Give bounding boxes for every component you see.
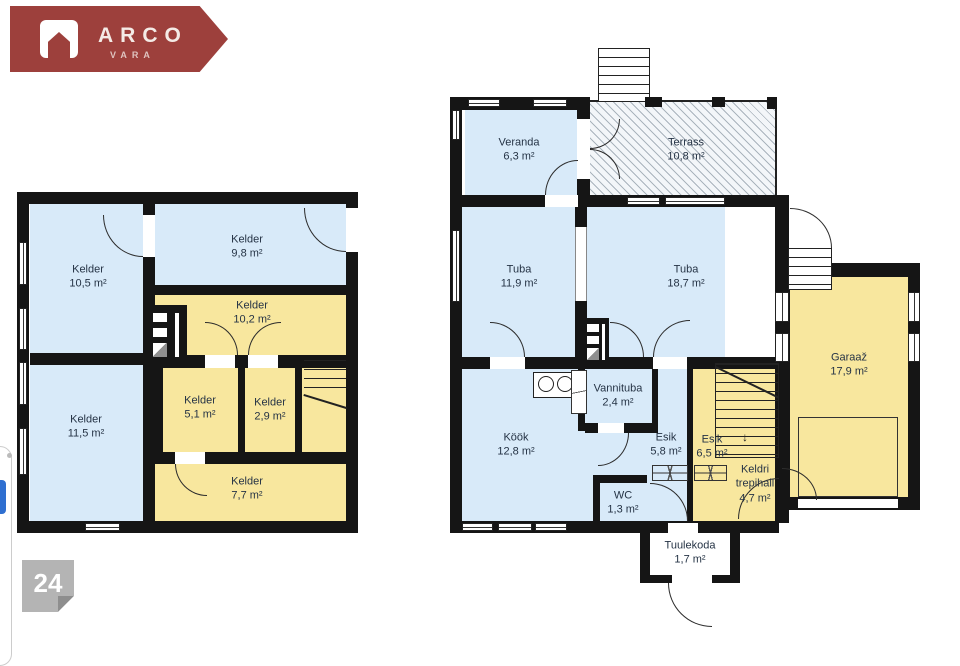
window xyxy=(498,523,532,531)
room-area: 2,9 m² xyxy=(254,410,286,424)
room-name: WC xyxy=(607,489,638,503)
terrace-post xyxy=(645,97,662,107)
window xyxy=(665,197,725,205)
terrace-post xyxy=(712,97,725,107)
room-name: Tuba xyxy=(667,263,704,277)
image-number-badge[interactable]: 24 xyxy=(22,560,74,612)
window xyxy=(775,292,789,322)
stove-burner xyxy=(538,376,554,392)
arco-vara-logo: ARCO VARA xyxy=(10,6,228,72)
room-label: Kelder7,7 m² xyxy=(231,475,263,504)
room-label: Tuba18,7 m² xyxy=(667,263,704,292)
basement-floor-plan: Kelder10,5 m² Kelder9,8 m² Kelder10,2 m²… xyxy=(17,192,358,533)
logo-brand-text: ARCO xyxy=(98,24,188,48)
room-name: Keldri trepihall xyxy=(727,463,783,492)
wall xyxy=(593,475,600,521)
door-gap xyxy=(143,215,155,257)
wall xyxy=(730,521,740,583)
door-gap xyxy=(668,523,698,533)
window xyxy=(452,230,460,302)
room-area: 11,9 m² xyxy=(501,277,537,291)
door-arc xyxy=(668,583,712,627)
stairs xyxy=(304,360,346,394)
room-area: 6,5 m² xyxy=(696,447,727,461)
wall xyxy=(450,195,789,207)
window xyxy=(19,362,27,405)
exterior-stairs xyxy=(598,48,650,102)
room-label: Tuba11,9 m² xyxy=(501,263,537,292)
stairs-down-arrow: ↓ xyxy=(742,430,748,444)
door-gap xyxy=(653,357,687,369)
room-name: Garaaž xyxy=(830,351,867,365)
chimney-block xyxy=(145,305,187,367)
room-name: Terrass xyxy=(667,136,704,150)
room-name: Esik xyxy=(650,431,681,445)
room-name: Kelder xyxy=(184,394,216,408)
door-arc xyxy=(790,208,832,248)
room-label: Kelder9,8 m² xyxy=(231,233,263,262)
room-area: 17,9 m² xyxy=(830,365,867,379)
window xyxy=(19,308,27,350)
window xyxy=(908,292,920,322)
room-area: 11,5 m² xyxy=(68,427,104,441)
window xyxy=(85,523,120,531)
room-area: 10,2 m² xyxy=(233,313,270,327)
wardrobe xyxy=(652,465,688,481)
logo-sub-text: VARA xyxy=(110,50,155,60)
room-label: Tuulekoda1,7 m² xyxy=(665,539,716,568)
boiler-cabinet xyxy=(571,370,587,414)
room-label: Kelder5,1 m² xyxy=(184,394,216,423)
wall-opening xyxy=(575,227,587,301)
door-gap xyxy=(545,195,578,207)
window xyxy=(908,333,920,362)
door-gap xyxy=(598,423,624,433)
chimney-block xyxy=(583,318,609,364)
window xyxy=(533,99,567,107)
room-label: Kelder11,5 m² xyxy=(68,413,104,442)
room-area: 10,5 m² xyxy=(69,277,106,291)
partial-blue-button[interactable] xyxy=(0,480,6,514)
window xyxy=(468,99,500,107)
badge-fold-corner xyxy=(58,596,74,612)
window xyxy=(627,197,660,205)
garage-door-gap xyxy=(798,499,898,508)
room-area: 18,7 m² xyxy=(667,277,704,291)
room-name: Kelder xyxy=(233,299,270,313)
entrance-steps xyxy=(788,248,832,290)
door-gap xyxy=(672,575,712,583)
room-label: Garaaž17,9 m² xyxy=(830,351,867,380)
room-label: Vannituba2,4 m² xyxy=(594,382,643,411)
room-area: 1,7 m² xyxy=(665,553,716,567)
door-gap xyxy=(248,355,278,368)
wall xyxy=(640,521,650,583)
wall xyxy=(593,475,647,483)
door-gap xyxy=(205,355,235,368)
card-dot xyxy=(7,453,12,458)
room-name: Vannituba xyxy=(594,382,643,396)
room-name: Kelder xyxy=(231,475,263,489)
room-label: Kelder10,2 m² xyxy=(233,299,270,328)
room-area: 5,8 m² xyxy=(650,445,681,459)
wall xyxy=(155,368,163,452)
partial-side-card xyxy=(0,446,12,666)
wall xyxy=(238,368,245,452)
badge-number: 24 xyxy=(22,568,74,599)
wall xyxy=(687,369,693,521)
room-label: Terrass10,8 m² xyxy=(667,136,704,165)
terrace-post xyxy=(767,97,777,109)
room-label: Kelder10,5 m² xyxy=(69,263,106,292)
room-label: Esik5,8 m² xyxy=(650,431,681,460)
room-name: Veranda xyxy=(499,136,540,150)
room-area: 9,8 m² xyxy=(231,247,263,261)
room-name: Kelder xyxy=(68,413,104,427)
room-area: 5,1 m² xyxy=(184,408,216,422)
room-name: Tuulekoda xyxy=(665,539,716,553)
room-name: Kelder xyxy=(231,233,263,247)
window xyxy=(19,428,27,475)
window xyxy=(462,523,493,531)
room-label: Kelder2,9 m² xyxy=(254,396,286,425)
door-gap xyxy=(175,452,205,464)
room-area: 2,4 m² xyxy=(594,396,643,410)
room-label: WC1,3 m² xyxy=(607,489,638,518)
wardrobe xyxy=(694,465,727,481)
window xyxy=(19,242,27,285)
window xyxy=(775,333,789,362)
room-area: 6,3 m² xyxy=(499,150,540,164)
room-area: 10,8 m² xyxy=(667,150,704,164)
wall xyxy=(652,369,658,433)
door-gap xyxy=(346,208,358,252)
room-name: Kelder xyxy=(69,263,106,277)
room-area: 1,3 m² xyxy=(607,503,638,517)
room-name: Esik xyxy=(696,433,727,447)
room-label: Keldri trepihall4,7 m² xyxy=(727,463,783,506)
room-area: 12,8 m² xyxy=(497,445,534,459)
wall xyxy=(30,353,143,365)
ground-floor-plan: ↓ Veranda6,3 m² Terrass10,8 m² Tuba11,9 … xyxy=(450,48,925,638)
door-gap xyxy=(577,119,590,179)
room-label: Esik6,5 m² xyxy=(696,433,727,462)
room-name: Kelder xyxy=(254,396,286,410)
door-gap xyxy=(490,357,525,369)
room-name: Tuba xyxy=(501,263,537,277)
room-name: Köök xyxy=(497,431,534,445)
room-label: Veranda6,3 m² xyxy=(499,136,540,165)
wall xyxy=(155,285,346,295)
room-area: 4,7 m² xyxy=(727,491,783,505)
room-area: 7,7 m² xyxy=(231,489,263,503)
house-icon xyxy=(40,20,78,58)
wall xyxy=(295,368,302,452)
room-label: Köök12,8 m² xyxy=(497,431,534,460)
window xyxy=(452,110,460,140)
wall xyxy=(827,263,910,277)
window xyxy=(535,523,567,531)
